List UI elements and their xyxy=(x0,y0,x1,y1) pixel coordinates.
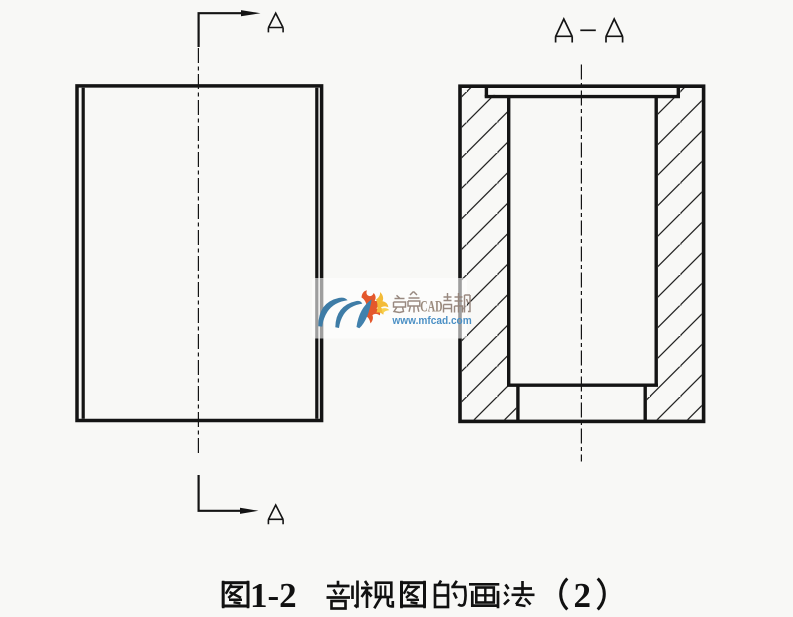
svg-text:1-2: 1-2 xyxy=(250,576,297,615)
svg-text:CAD: CAD xyxy=(420,297,442,315)
svg-text:2: 2 xyxy=(574,576,592,615)
svg-text:www.mfcad.com: www.mfcad.com xyxy=(391,314,471,326)
